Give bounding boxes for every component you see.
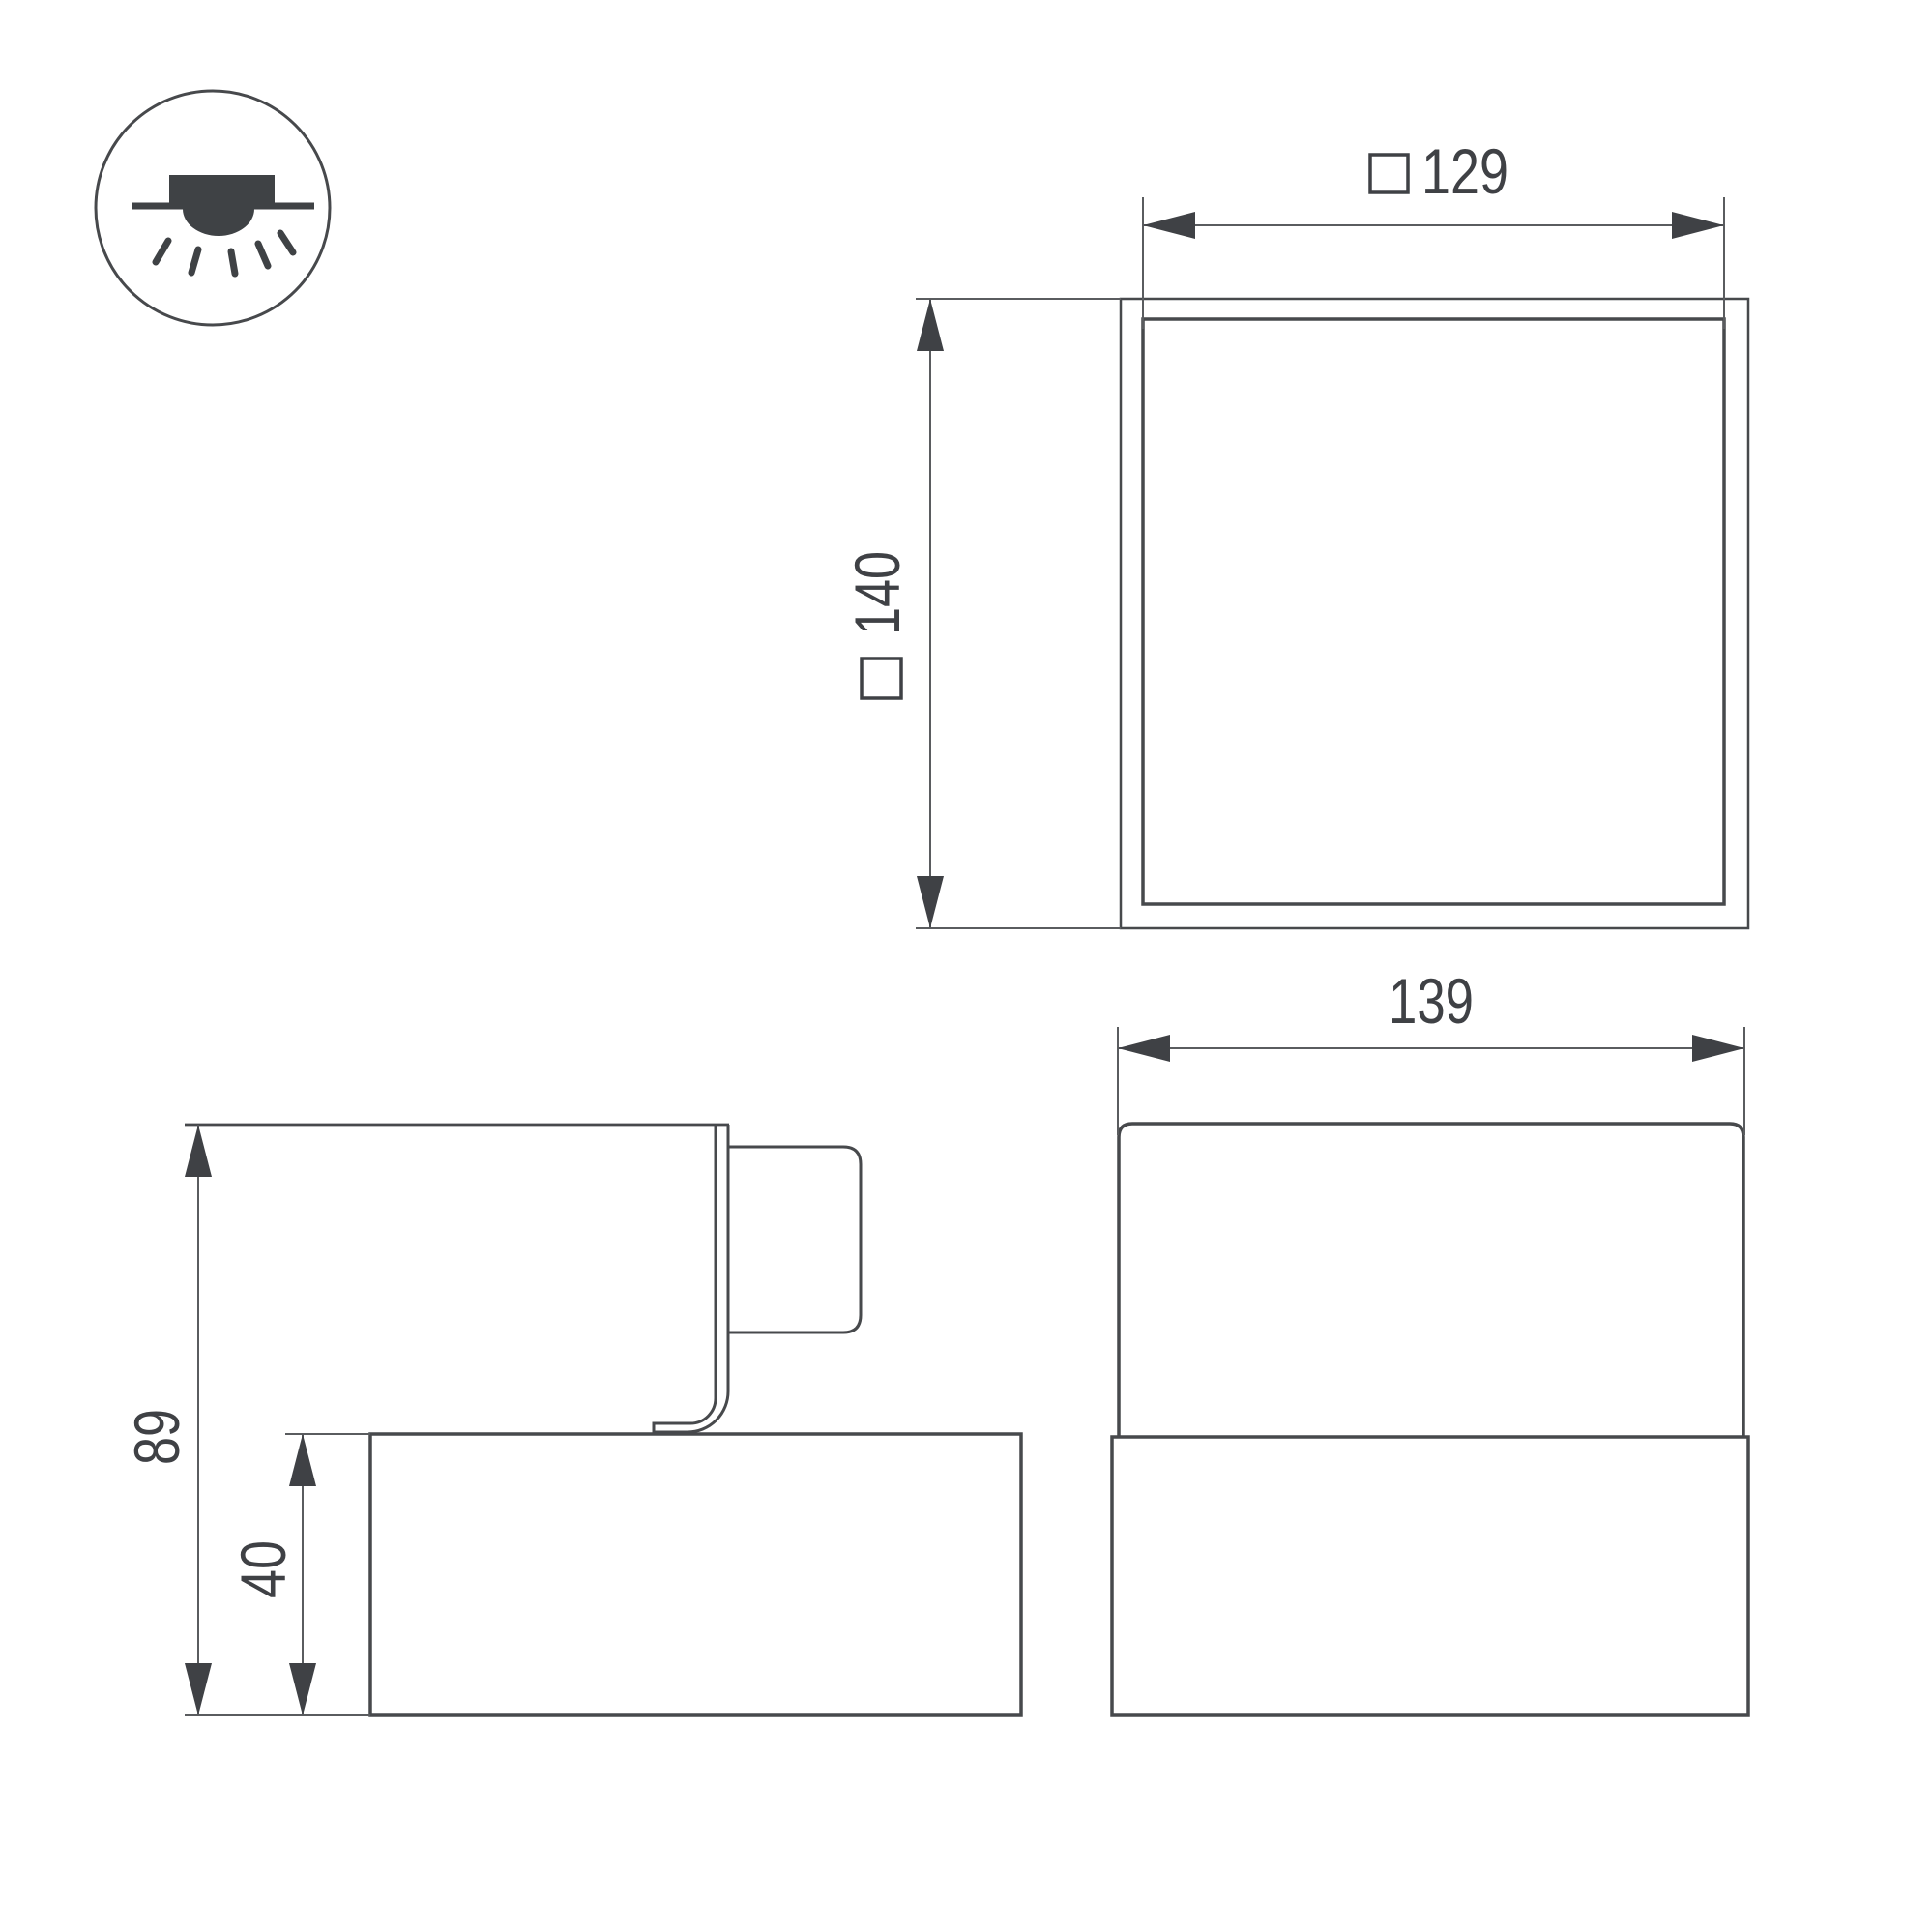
rotated-label-140: 140 <box>841 551 913 698</box>
dimension-value-40: 40 <box>227 1540 299 1598</box>
plan-outer-height-dimension: 140 <box>841 299 1121 928</box>
side-mounting-bracket <box>654 1125 728 1432</box>
plan-view: 129 140 <box>841 135 1748 928</box>
arrowhead-up <box>289 1434 316 1486</box>
arrowhead-right <box>1692 1035 1744 1062</box>
technical-drawing: 129 140 8 <box>0 0 1932 1932</box>
side-base-body <box>370 1434 1021 1715</box>
arrowhead-up <box>185 1125 212 1177</box>
rotated-label-40: 40 <box>227 1540 299 1598</box>
arrowhead-left <box>1118 1035 1170 1062</box>
side-base-height-dimension: 40 <box>227 1434 370 1715</box>
plan-inner-square <box>1143 319 1724 904</box>
side-driver-box <box>728 1147 861 1332</box>
plan-outer-square <box>1121 299 1748 928</box>
arrowhead-up <box>917 299 944 351</box>
front-upper-block <box>1119 1124 1743 1437</box>
icon-light-rays <box>156 233 293 274</box>
dimension-value-89: 89 <box>121 1409 192 1465</box>
icon-fixture-body <box>169 175 275 204</box>
rotated-label-89: 89 <box>121 1409 192 1465</box>
square-symbol-icon <box>862 659 901 698</box>
dimension-value-140: 140 <box>841 551 913 635</box>
arrowhead-right <box>1672 212 1724 239</box>
arrowhead-down <box>185 1663 212 1715</box>
arrowhead-down <box>289 1663 316 1715</box>
front-base-block <box>1112 1437 1748 1715</box>
dimension-value-129: 129 <box>1421 135 1508 207</box>
arrowhead-down <box>917 876 944 928</box>
drawing-page: 129 140 8 <box>0 0 1932 1932</box>
icon-light-dome <box>183 209 254 236</box>
arrowhead-left <box>1143 212 1195 239</box>
front-view: 139 <box>1112 965 1748 1715</box>
front-width-dimension: 139 <box>1118 965 1744 1135</box>
dimension-value-139: 139 <box>1389 965 1474 1037</box>
square-symbol-icon <box>1370 155 1408 192</box>
side-overall-height-dimension: 89 <box>121 1125 370 1715</box>
recessed-ceiling-light-icon <box>96 91 330 325</box>
side-view: 89 40 <box>121 1125 1021 1715</box>
